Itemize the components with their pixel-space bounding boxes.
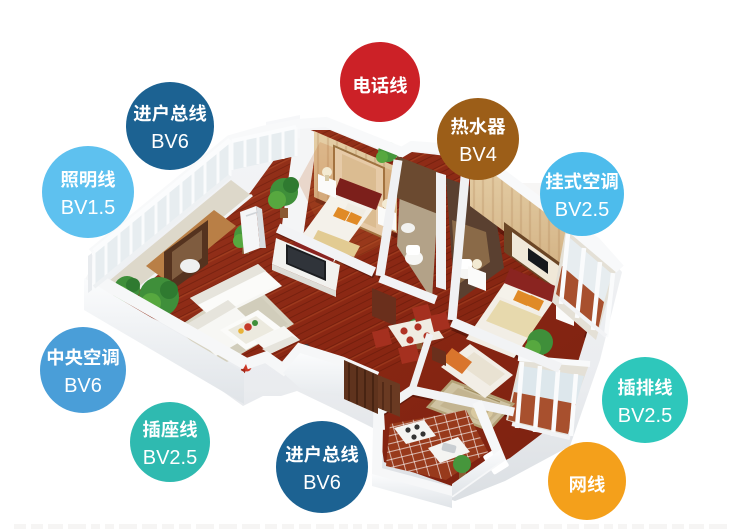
svg-text:BV4: BV4 [459,144,497,166]
svg-text:BV1.5: BV1.5 [61,197,115,219]
svg-text:BV6: BV6 [151,131,189,153]
svg-text:BV2.5: BV2.5 [618,405,672,427]
svg-text:BV6: BV6 [303,472,341,494]
svg-text:BV2.5: BV2.5 [555,199,609,221]
svg-text:BV2.5: BV2.5 [143,447,197,469]
svg-text:BV6: BV6 [64,375,102,397]
